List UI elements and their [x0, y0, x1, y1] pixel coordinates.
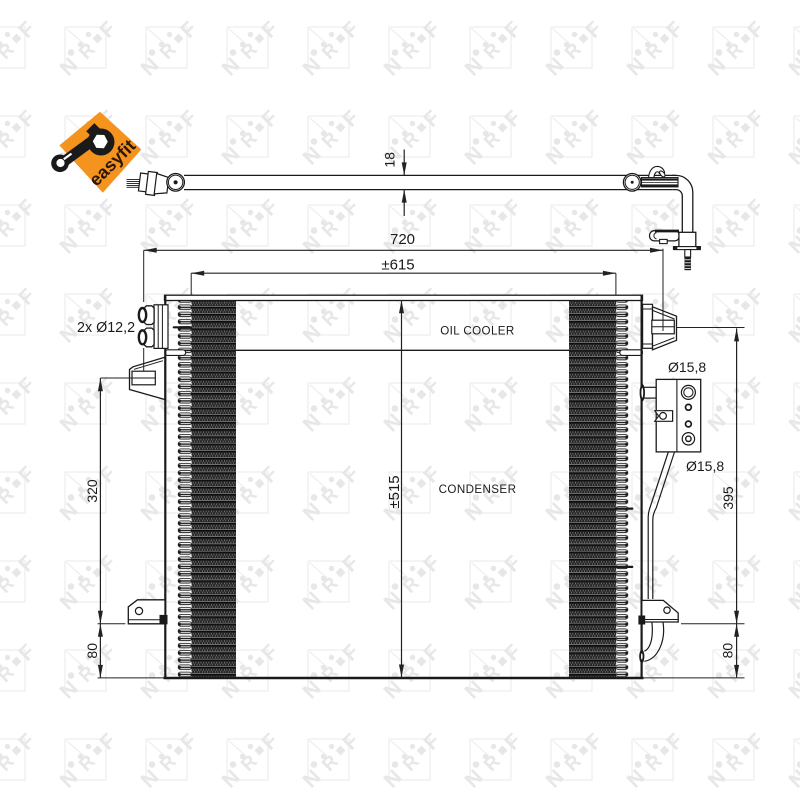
svg-text:OIL COOLER: OIL COOLER	[440, 324, 514, 337]
svg-text:±615: ±615	[381, 257, 414, 274]
svg-text:±515: ±515	[386, 475, 403, 508]
svg-text:Ø15,8: Ø15,8	[686, 458, 724, 474]
svg-text:Ø15,8: Ø15,8	[668, 359, 706, 375]
svg-text:80: 80	[720, 643, 736, 659]
svg-text:720: 720	[390, 231, 415, 248]
svg-text:CONDENSER: CONDENSER	[439, 483, 517, 496]
svg-text:18: 18	[382, 152, 398, 168]
svg-text:320: 320	[84, 479, 100, 503]
svg-text:80: 80	[84, 643, 100, 659]
svg-text:2x Ø12,2: 2x Ø12,2	[77, 320, 135, 336]
svg-text:395: 395	[720, 486, 736, 510]
